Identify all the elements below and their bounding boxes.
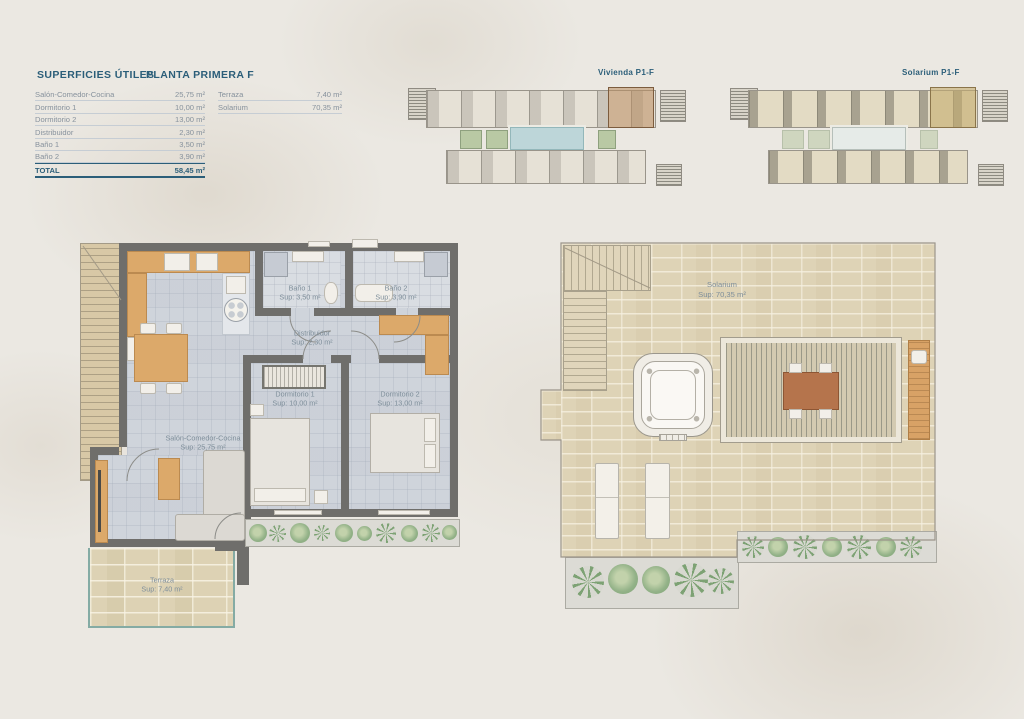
plant — [249, 524, 267, 542]
garden-patch — [598, 130, 616, 149]
garden-patch — [486, 130, 508, 149]
room-area: Sup: 3,90 m² — [375, 293, 416, 302]
towel — [911, 350, 927, 364]
wall — [237, 551, 249, 585]
wall — [450, 251, 458, 517]
stove — [224, 298, 248, 322]
chair — [140, 323, 156, 334]
page-subtitle: PLANTA PRIMERA F — [146, 69, 254, 81]
plant — [876, 537, 896, 557]
garden-patch — [460, 130, 482, 149]
row-label: Baño 2 — [35, 152, 59, 161]
tv — [98, 470, 101, 532]
row-label: Terraza — [218, 90, 243, 99]
sofa — [203, 450, 245, 518]
plant — [442, 525, 457, 540]
wall — [331, 355, 351, 363]
exterior-table: Terraza 7,40 m² Solarium 70,35 m² — [218, 89, 342, 114]
stairs-block — [978, 164, 1004, 186]
row-value: 3,90 m² — [179, 152, 205, 161]
wall — [255, 251, 263, 308]
shower — [264, 252, 288, 277]
bathroom-sink — [292, 251, 324, 262]
brochure-page: { "header": { "title": "SUPERFICIES ÚTIL… — [0, 0, 1024, 719]
oven-appliance — [196, 253, 218, 271]
room-name: Baño 2 — [385, 284, 408, 293]
stairs-block — [656, 164, 682, 186]
plant — [642, 566, 670, 594]
row-label: Solarium — [218, 103, 248, 112]
nightstand — [250, 404, 264, 416]
pillow — [424, 444, 436, 468]
window — [378, 510, 430, 515]
tv-unit — [95, 460, 108, 543]
exterior-stairs — [80, 243, 122, 481]
closet — [262, 365, 326, 389]
plant — [822, 537, 842, 557]
row-label: Distribuidor — [35, 128, 73, 137]
chair — [140, 383, 156, 394]
room-label-solarium: Solarium Sup: 70,35 m² — [698, 280, 746, 300]
minimap-solarium: Solarium P1-F — [724, 64, 1016, 190]
palm-plant — [708, 568, 734, 594]
room-area: Sup: 2,30 m² — [291, 338, 332, 347]
vent-recess — [352, 239, 378, 248]
row-value: 10,00 m² — [175, 103, 205, 112]
palm-plant — [376, 523, 396, 543]
plant — [290, 523, 310, 543]
dining-table — [134, 334, 188, 382]
window — [274, 510, 322, 515]
jacuzzi-controls — [659, 434, 687, 441]
minimap-vivienda-title: Vivienda P1-F — [598, 68, 654, 77]
garden-patch — [808, 130, 830, 149]
planter — [245, 519, 460, 547]
palm-plant — [572, 566, 604, 598]
sofa — [175, 514, 245, 541]
plant — [401, 525, 418, 542]
bathroom-sink — [394, 251, 424, 262]
row-value: 2,30 m² — [179, 128, 205, 137]
palm-plant — [674, 563, 708, 597]
room-label-dormitorio2: Dormitorio 2 Sup: 13,00 m² — [377, 390, 422, 409]
room-area: Sup: 7,40 m² — [141, 585, 182, 594]
row-value: 7,40 m² — [316, 90, 342, 99]
chair — [166, 323, 182, 334]
room-label-salon: Salón-Comedor-Cocina Sup: 25,75 m² — [165, 434, 240, 453]
total-value: 58,45 m² — [175, 166, 205, 175]
room-area: Sup: 25,75 m² — [165, 443, 240, 452]
room-name: Baño 1 — [289, 284, 312, 293]
total-label: TOTAL — [35, 166, 60, 175]
toilet — [324, 282, 338, 304]
pillow — [254, 488, 306, 502]
row-value: 70,35 m² — [312, 103, 342, 112]
jacuzzi-rim — [641, 361, 705, 429]
pool — [510, 127, 584, 150]
table-row: Baño 2 3,90 m² — [35, 151, 205, 163]
highlighted-unit — [608, 87, 654, 128]
wardrobe — [425, 335, 449, 375]
nightstand — [314, 490, 328, 504]
building-row-bottom — [768, 150, 968, 184]
outdoor-table — [783, 372, 839, 410]
room-label-distribuidor: Distribuidor Sup: 2,30 m² — [291, 329, 332, 348]
room-label-dormitorio1: Dormitorio 1 Sup: 10,00 m² — [272, 390, 317, 409]
room-label-bano2: Baño 2 Sup: 3,90 m² — [375, 284, 416, 303]
table-total-row: TOTAL 58,45 m² — [35, 163, 205, 177]
table-row: Distribuidor 2,30 m² — [35, 126, 205, 138]
wardrobe — [379, 315, 449, 335]
highlighted-unit — [930, 87, 976, 128]
plant — [335, 524, 353, 542]
chair — [819, 409, 832, 419]
room-area: Sup: 10,00 m² — [272, 399, 317, 408]
palm-plant — [742, 536, 764, 558]
room-name: Salón-Comedor-Cocina — [165, 434, 240, 443]
chair — [789, 363, 802, 373]
palm-plant — [900, 536, 922, 558]
pillow — [424, 418, 436, 442]
chair — [819, 363, 832, 373]
chair — [789, 409, 802, 419]
table-row: Salón-Comedor-Cocina 25,75 m² — [35, 89, 205, 101]
plant — [768, 537, 788, 557]
wall — [90, 447, 119, 455]
planter — [737, 531, 937, 563]
palm-plant — [422, 524, 440, 542]
room-label-terraza: Terraza Sup: 7,40 m² — [141, 576, 182, 595]
room-name: Solarium — [707, 280, 737, 289]
stairs-block — [982, 90, 1008, 122]
solarium-stairs-left — [563, 291, 607, 391]
minimap-solarium-title: Solarium P1-F — [902, 68, 960, 77]
table-row: Baño 1 3,50 m² — [35, 139, 205, 151]
palm-plant — [314, 525, 330, 541]
solarium-floor-notch — [541, 390, 561, 440]
row-value: 25,75 m² — [175, 90, 205, 99]
room-name: Distribuidor — [294, 329, 330, 338]
cooktop-appliance — [164, 253, 190, 271]
palm-plant — [793, 535, 817, 559]
row-label: Dormitorio 1 — [35, 103, 76, 112]
pool — [832, 127, 906, 150]
shower — [424, 252, 448, 277]
plant — [608, 564, 638, 594]
room-area: Sup: 3,50 m² — [279, 293, 320, 302]
surfaces-table: Salón-Comedor-Cocina 25,75 m² Dormitorio… — [35, 89, 205, 178]
room-name: Dormitorio 1 — [275, 390, 314, 399]
row-label: Dormitorio 2 — [35, 115, 76, 124]
wall — [345, 251, 353, 308]
sun-lounger — [595, 463, 619, 539]
coffee-table — [158, 458, 180, 500]
apartment-floorplan: Baño 1 Sup: 3,50 m² Baño 2 Sup: 3,90 m² … — [78, 238, 550, 638]
row-value: 3,50 m² — [179, 140, 205, 149]
wall — [255, 308, 291, 316]
table-row: Terraza 7,40 m² — [218, 89, 342, 101]
kitchen-sink — [226, 276, 246, 294]
table-row: Dormitorio 2 13,00 m² — [35, 114, 205, 126]
row-value: 13,00 m² — [175, 115, 205, 124]
wall — [245, 355, 303, 363]
row-label: Salón-Comedor-Cocina — [35, 90, 114, 99]
jacuzzi-basin — [650, 370, 696, 420]
building-row-bottom — [446, 150, 646, 184]
palm-plant — [269, 525, 286, 542]
room-name: Dormitorio 2 — [380, 390, 419, 399]
solarium-floorplan: Solarium Sup: 70,35 m² — [540, 238, 942, 618]
window — [308, 241, 330, 247]
room-area: Sup: 13,00 m² — [377, 399, 422, 408]
room-label-bano1: Baño 1 Sup: 3,50 m² — [279, 284, 320, 303]
wall — [119, 251, 127, 447]
garden-patch — [782, 130, 804, 149]
table-row: Dormitorio 1 10,00 m² — [35, 101, 205, 113]
room-name: Terraza — [150, 576, 174, 585]
jacuzzi — [633, 353, 713, 437]
table-row: Solarium 70,35 m² — [218, 101, 342, 113]
stairs-block — [660, 90, 686, 122]
chair — [166, 383, 182, 394]
room-area: Sup: 70,35 m² — [698, 290, 746, 300]
wall — [119, 243, 458, 251]
solarium-stairs-top — [563, 245, 651, 291]
garden-patch — [920, 130, 938, 149]
planter — [565, 557, 739, 609]
row-label: Baño 1 — [35, 140, 59, 149]
sun-lounger — [645, 463, 670, 539]
palm-plant — [847, 535, 871, 559]
plant — [357, 526, 372, 541]
page-title: SUPERFICIES ÚTILES — [37, 69, 154, 81]
minimap-vivienda: Vivienda P1-F — [402, 64, 694, 190]
wall — [341, 363, 349, 509]
